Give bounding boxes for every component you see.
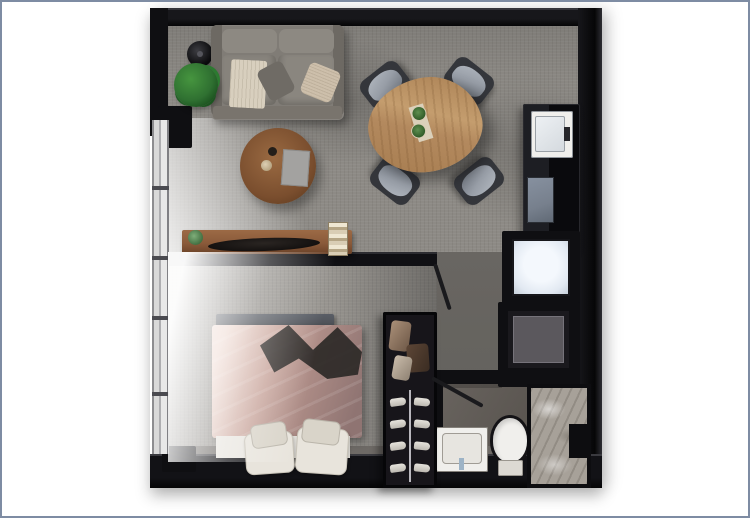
floor-plan: [150, 8, 602, 488]
page-background: [0, 0, 750, 518]
sofa-front-edge: [213, 106, 342, 119]
window-wall: [152, 120, 169, 454]
book-on-table: [281, 149, 310, 187]
potted-plant: [174, 63, 218, 107]
window-mullion: [152, 256, 169, 260]
jar-on-table: [268, 147, 277, 156]
wall-bedroom-divider: [160, 252, 437, 266]
toilet-base: [498, 460, 523, 476]
kitchen-sink: [531, 111, 573, 158]
washer-top: [512, 239, 570, 296]
window-mullion: [152, 186, 169, 190]
console-plant: [188, 230, 203, 245]
bathroom-sink: [436, 427, 488, 472]
coffee-table: [240, 128, 316, 204]
cooktop: [527, 177, 554, 223]
console-books: [328, 222, 348, 256]
corridor-shadow: [437, 252, 502, 388]
bed-pillow-small: [301, 418, 342, 446]
sofa-back-cushion: [279, 29, 334, 53]
cup-on-table: [261, 160, 272, 171]
dryer-top: [508, 311, 569, 368]
shoe-pair-row: [389, 420, 431, 430]
sofa-back-cushion: [222, 29, 277, 53]
toilet-lid: [493, 418, 527, 462]
walk-in-shower: [527, 384, 591, 488]
shoe-pair-row: [389, 398, 431, 408]
shoe-pair-row: [389, 464, 431, 474]
hanging-clothes: [391, 355, 413, 382]
shoe-pair-row: [389, 442, 431, 452]
wardrobe: [383, 312, 437, 488]
window-mullion: [152, 316, 169, 320]
toilet: [491, 418, 531, 476]
window-mullion: [152, 392, 169, 396]
wall-top: [150, 8, 602, 26]
